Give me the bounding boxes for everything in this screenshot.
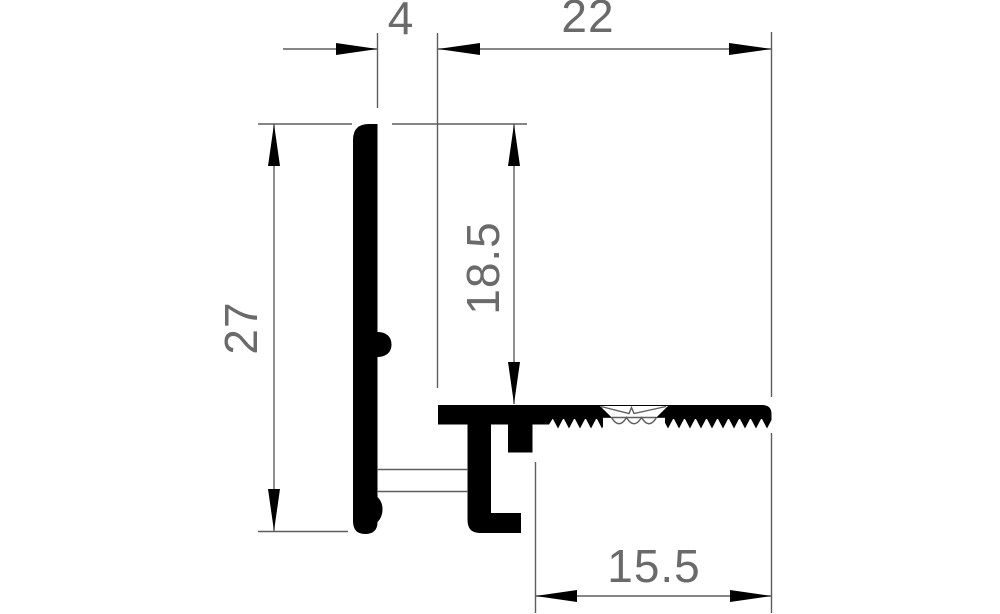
arrowhead-left [536,590,578,602]
arrowhead-right [336,43,378,55]
dimension-bottom-width: 15.5 [536,433,772,613]
dimension-22-label: 22 [561,0,614,42]
arrowhead-down [268,489,280,531]
dimension-inner-height: 18.5 [457,124,520,404]
dimension-15-5-label: 15.5 [607,540,701,592]
dimension-lip-offset: 4 [283,0,414,108]
drawing-page: 4 22 27 18.5 15.5 [0,0,1000,614]
dimension-4-label: 4 [388,0,415,44]
arrowhead-up [508,124,520,166]
arrowhead-left [438,43,480,55]
serration-break-symbol [600,406,668,431]
arrowhead-right [730,590,772,602]
profile-cross-section [353,124,772,534]
dimension-18-5-label: 18.5 [457,221,509,315]
profile-technical-drawing: 4 22 27 18.5 15.5 [0,0,1000,614]
arrowhead-right [729,43,772,55]
arrowhead-down [508,362,520,404]
arrowhead-up [268,124,280,166]
dimension-top-width: 22 [438,0,772,397]
dimension-27-label: 27 [215,301,267,354]
profile-wall-section [353,124,392,534]
